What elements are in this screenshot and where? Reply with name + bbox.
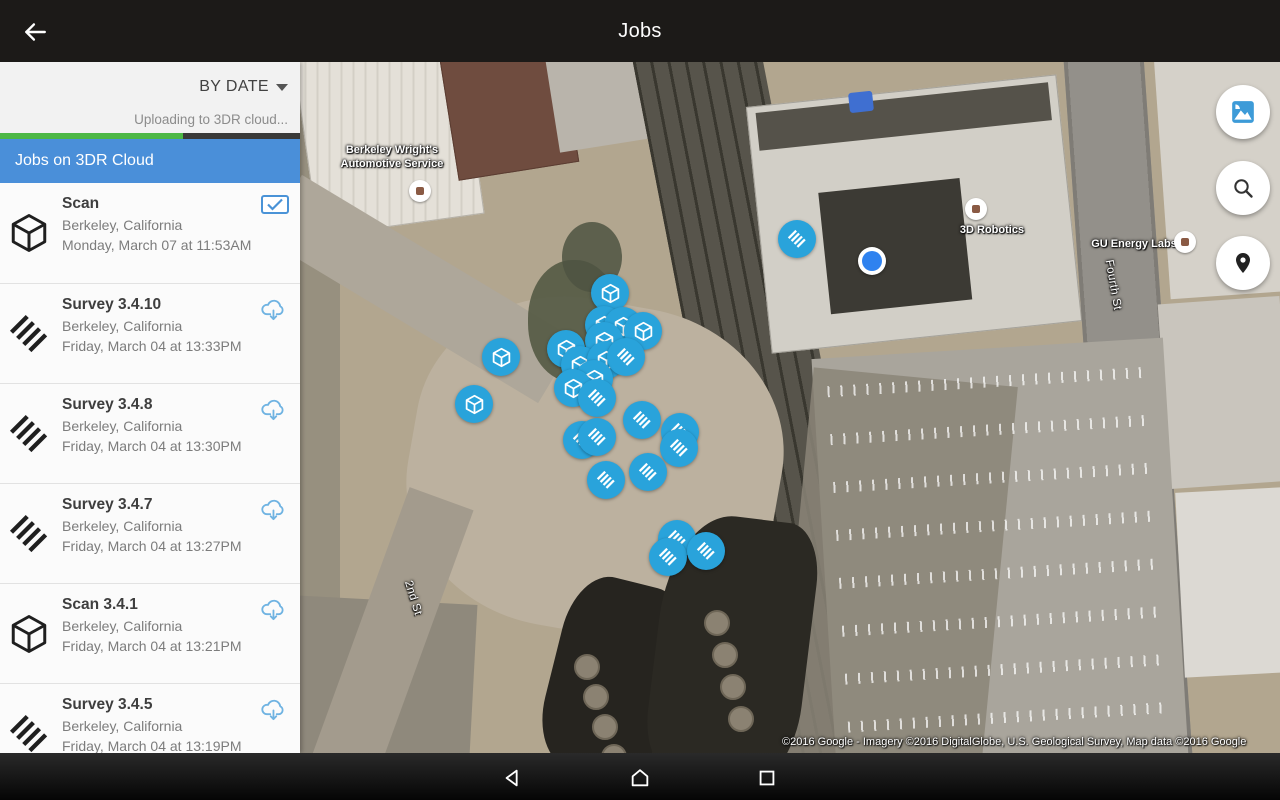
survey-lines-icon (587, 427, 607, 447)
jobs-sidebar: BY DATE Uploading to 3DR cloud... Jobs o… (0, 62, 300, 753)
job-location: Berkeley, California (62, 217, 182, 233)
my-location-button[interactable] (1216, 236, 1270, 290)
job-title: Scan (62, 195, 99, 213)
job-location: Berkeley, California (62, 418, 182, 434)
dropdown-triangle-icon (276, 84, 288, 91)
survey-lines-icon (658, 547, 678, 567)
job-location: Berkeley, California (62, 618, 182, 634)
job-date: Friday, March 04 at 13:19PM (62, 738, 241, 753)
nav-recents-icon[interactable] (756, 767, 778, 789)
sidebar-header: BY DATE Uploading to 3DR cloud... (0, 62, 300, 140)
scan-cube-icon (600, 283, 621, 304)
android-nav-bar (0, 753, 1280, 800)
scan-cube-icon (491, 347, 512, 368)
job-map-marker-scan[interactable] (482, 338, 520, 376)
banner-label: Jobs on 3DR Cloud (15, 152, 154, 170)
job-map-marker-survey[interactable] (687, 532, 725, 570)
job-list-item-survey[interactable]: Survey 3.4.8 Berkeley, California Friday… (0, 383, 300, 483)
job-list-item-survey[interactable]: Survey 3.4.5 Berkeley, California Friday… (0, 683, 300, 753)
page-title: Jobs (0, 0, 1280, 62)
survey-lines-icon (587, 388, 607, 408)
job-map-marker-survey[interactable] (607, 338, 645, 376)
cloud-download-icon[interactable] (259, 296, 289, 326)
job-title: Survey 3.4.10 (62, 296, 161, 314)
job-date: Friday, March 04 at 13:30PM (62, 438, 241, 454)
job-list-item-scan[interactable]: Scan Berkeley, California Monday, March … (0, 183, 300, 283)
nav-home-icon[interactable] (629, 767, 651, 789)
survey-lines-icon (669, 438, 689, 458)
poi-marker[interactable] (409, 180, 431, 202)
checkmark-icon (266, 198, 284, 211)
job-location: Berkeley, California (62, 718, 182, 734)
job-map-marker-scan[interactable] (455, 385, 493, 423)
job-date: Friday, March 04 at 13:21PM (62, 638, 241, 654)
cloud-download-icon[interactable] (259, 596, 289, 626)
selected-checkbox[interactable] (261, 195, 289, 214)
job-title: Survey 3.4.8 (62, 396, 152, 414)
job-map-marker-survey[interactable] (778, 220, 816, 258)
job-title: Scan 3.4.1 (62, 596, 138, 614)
job-date: Friday, March 04 at 13:27PM (62, 538, 241, 554)
cloud-download-icon[interactable] (259, 696, 289, 726)
survey-lines-icon (8, 413, 50, 455)
search-icon (1231, 176, 1255, 200)
satellite-layer-icon (1230, 99, 1256, 125)
sort-label: BY DATE (199, 78, 269, 96)
survey-lines-icon (696, 541, 716, 561)
job-date: Monday, March 07 at 11:53AM (62, 237, 251, 253)
map-search-button[interactable] (1216, 161, 1270, 215)
job-location: Berkeley, California (62, 518, 182, 534)
map-attribution: ©2016 Google - Imagery ©2016 DigitalGlob… (782, 736, 1246, 748)
location-pin-icon (1231, 251, 1255, 275)
job-title: Survey 3.4.7 (62, 496, 152, 514)
satellite-map[interactable]: Berkeley Wright's Automotive Service 3D … (300, 62, 1280, 753)
survey-lines-icon (632, 410, 652, 430)
job-map-marker-survey[interactable] (578, 418, 616, 456)
scan-cube-icon (464, 394, 485, 415)
job-map-marker-survey[interactable] (578, 379, 616, 417)
job-list-item-survey[interactable]: Survey 3.4.7 Berkeley, California Friday… (0, 483, 300, 583)
job-list-item-scan[interactable]: Scan 3.4.1 Berkeley, California Friday, … (0, 583, 300, 683)
scan-cube-icon (8, 613, 50, 655)
job-map-marker-survey[interactable] (629, 453, 667, 491)
survey-lines-icon (596, 470, 616, 490)
map-label-business: 3D Robotics (932, 223, 1052, 237)
scan-cube-icon (8, 212, 50, 254)
sort-by-date-dropdown[interactable]: BY DATE (199, 75, 288, 99)
job-map-marker-survey[interactable] (649, 538, 687, 576)
map-type-button[interactable] (1216, 85, 1270, 139)
map-label-business: Berkeley Wright's Automotive Service (327, 143, 457, 171)
survey-lines-icon (8, 713, 50, 753)
cloud-download-icon[interactable] (259, 396, 289, 426)
survey-lines-icon (638, 462, 658, 482)
scan-cube-icon (633, 321, 654, 342)
poi-marker[interactable] (1174, 231, 1196, 253)
job-map-marker-survey[interactable] (623, 401, 661, 439)
survey-lines-icon (787, 229, 807, 249)
app-top-bar: Jobs (0, 0, 1280, 62)
cloud-download-icon[interactable] (259, 496, 289, 526)
app-screen: Jobs BY DATE Uploading to 3DR cloud... J… (0, 0, 1280, 800)
job-map-marker-survey[interactable] (660, 429, 698, 467)
survey-lines-icon (616, 347, 636, 367)
job-map-marker-survey[interactable] (587, 461, 625, 499)
jobs-on-cloud-banner: Jobs on 3DR Cloud (0, 139, 300, 183)
upload-status-text: Uploading to 3DR cloud... (134, 112, 288, 127)
job-title: Survey 3.4.5 (62, 696, 152, 714)
job-date: Friday, March 04 at 13:33PM (62, 338, 241, 354)
job-location: Berkeley, California (62, 318, 182, 334)
current-location-dot (858, 247, 886, 275)
poi-marker[interactable] (965, 198, 987, 220)
job-list-item-survey[interactable]: Survey 3.4.10 Berkeley, California Frida… (0, 283, 300, 383)
survey-lines-icon (8, 313, 50, 355)
job-list: Scan Berkeley, California Monday, March … (0, 183, 300, 753)
survey-lines-icon (8, 513, 50, 555)
nav-back-icon[interactable] (502, 767, 524, 789)
